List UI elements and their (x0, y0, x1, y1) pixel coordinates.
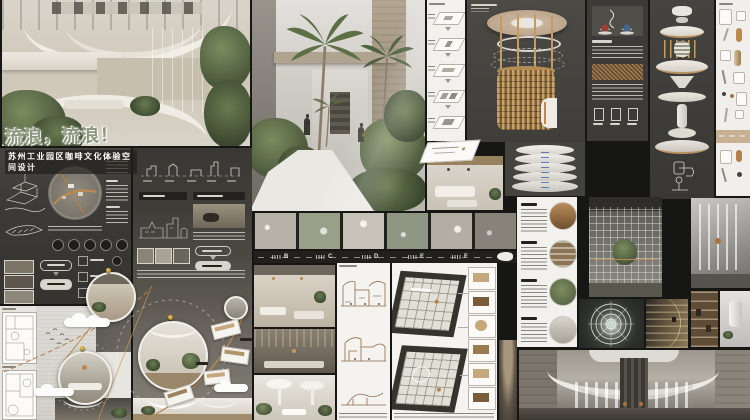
timeline-marker-d: D (374, 253, 378, 261)
note-photo-circle-4 (549, 316, 577, 344)
step-arrow-1 (445, 27, 451, 31)
lounge-lamp (292, 349, 296, 353)
header-chip-left (139, 192, 187, 200)
plant-column-right-lower (204, 80, 250, 146)
header-chip-label (143, 195, 165, 197)
machine-disc-3 (658, 92, 706, 102)
banner-mark-3 (739, 135, 745, 137)
step-arrow-2 (445, 53, 451, 57)
text-paragraph-a (592, 46, 643, 60)
inset-plant-3 (146, 359, 160, 371)
dining-lamp-2 (300, 277, 303, 280)
timeline-stripe-5 (452, 255, 461, 259)
bar-counter (435, 186, 475, 197)
callout-diagram-6 (473, 393, 489, 402)
render-atrium-courtyard (252, 0, 425, 211)
machine-base-plate (655, 140, 709, 154)
part-box (733, 72, 745, 84)
tower-board-header (471, 4, 497, 6)
machine-cap-2 (676, 17, 688, 23)
strip-thumb-6 (475, 213, 516, 249)
window-strip-blue (541, 148, 549, 188)
part-plate-3 (720, 150, 732, 164)
timeline-stripe-2 (316, 255, 325, 259)
shelf-arc (646, 299, 681, 348)
axon-plan-plate (419, 140, 480, 164)
pipe-highlights (699, 204, 743, 270)
plate-line-1 (432, 147, 459, 149)
machine-disc-1 (660, 26, 704, 38)
journey-circle-render-2 (138, 321, 208, 391)
machine-room-floor (691, 274, 750, 288)
note-text-3 (521, 285, 547, 309)
core-copper-dot-2 (639, 402, 643, 406)
massing-step-2 (433, 38, 465, 51)
note-header-1 (521, 203, 537, 206)
part-stick-2 (722, 70, 727, 84)
section-sketch-3 (339, 373, 388, 411)
section-sketch-1 (339, 270, 388, 316)
step-label-4 (428, 92, 435, 98)
vignette-roof-2 (224, 350, 244, 357)
callout-cell-2 (468, 291, 496, 314)
inset-wood-floor (140, 373, 206, 389)
core-copper-dot-1 (623, 402, 627, 406)
board-axon-plans (392, 263, 497, 420)
mesh-copper-rail (593, 259, 658, 260)
render-thumbnail-strip (254, 213, 517, 249)
cloud-2 (34, 388, 74, 396)
photo-subject (203, 213, 219, 222)
render-cylinder-lookup (579, 299, 644, 348)
render-kitchen-bar (427, 156, 503, 210)
sneaker-sketch (497, 252, 513, 261)
plan-1-plate (395, 277, 460, 331)
part-stick-3 (724, 108, 728, 122)
machine-cap (672, 6, 692, 16)
timeline-marker-b: B (284, 253, 288, 261)
shelf-jar-1 (696, 309, 701, 316)
step-label-2 (428, 40, 435, 46)
caption-lines (48, 226, 102, 233)
pendant-dot-1 (447, 168, 450, 171)
note-photo-circle-3 (549, 278, 577, 306)
cloud-bump (72, 313, 86, 323)
machine-core-tubes (620, 358, 648, 408)
inset-ceiling-band (88, 274, 134, 284)
hall-table (282, 409, 306, 415)
board-massing-process (427, 0, 465, 141)
part-dot-3 (737, 172, 742, 177)
strip-thumb-4 (387, 213, 428, 249)
part-stick-4 (721, 168, 727, 182)
poster-subtitle: 苏州工业园区咖啡文化体验空间设计 (5, 150, 137, 174)
banner-mark-1 (719, 135, 725, 137)
axon-plan-1 (392, 271, 467, 338)
spiral-cut (541, 98, 557, 128)
part-cylinder (734, 50, 741, 66)
board-tower-base (505, 142, 585, 196)
callout-diagram-3 (475, 320, 487, 331)
part-dot-2 (730, 94, 734, 98)
plan-2-plate (395, 352, 460, 407)
step-label-5 (428, 118, 435, 124)
step-arrow-4 (445, 105, 451, 109)
lounge-counter (264, 361, 324, 368)
plant-center-small (130, 96, 160, 116)
massing-mark-6 (442, 119, 455, 125)
massing-mark (443, 16, 453, 20)
note-header-3 (521, 279, 537, 282)
spiral-cut-detail (544, 102, 546, 124)
render-curved-bookshelf (646, 299, 688, 348)
timeline-stripe-3 (362, 255, 371, 259)
board-concept-text-column (587, 0, 648, 141)
coffee-bean-photo (592, 64, 643, 80)
massing-mark-4 (440, 93, 449, 99)
dining-ceiling-band (254, 265, 335, 275)
text-header-chip (592, 40, 612, 43)
plans-caption (394, 413, 494, 419)
journey-circle-render-4 (224, 296, 248, 320)
shelf-book-dot (672, 317, 676, 322)
cloud-bump-4 (220, 380, 231, 388)
part-capsule-copper-2 (736, 150, 742, 162)
machine-cone (670, 76, 694, 88)
machine-doodle-sketch (664, 158, 700, 194)
step-arrow-3 (445, 79, 451, 83)
inset-plant (92, 302, 106, 312)
massing-mark-3 (441, 68, 455, 72)
board-exploded-machine (650, 0, 714, 199)
vignette-roof (214, 323, 234, 332)
machine-stem (677, 104, 687, 128)
figure-label-2 (610, 123, 620, 125)
step-label-1 (428, 14, 435, 20)
dining-table-1 (260, 307, 286, 315)
timeline-stripe-1 (272, 255, 281, 259)
part-capsule-copper (736, 28, 742, 42)
history-timeline (139, 156, 245, 186)
plate-copper-dot (461, 147, 465, 150)
machine-ring-stack (674, 41, 690, 57)
board-exploded-tower (467, 0, 585, 142)
strip-thumb-2 (299, 213, 340, 249)
part-stick-1 (723, 28, 729, 41)
machine-flare (668, 128, 696, 138)
note-header-2 (521, 241, 537, 244)
note-photo-circle-2 (549, 240, 577, 268)
map-pin-2 (168, 315, 173, 320)
render-tree-column-hall (254, 375, 335, 420)
massing-mark-2 (445, 41, 453, 47)
board-section-sketches (337, 263, 390, 420)
part-ring-2 (735, 110, 744, 119)
callout-diagram-2 (473, 297, 489, 306)
factory-sketch-montage (137, 204, 189, 244)
journey-circle-render-3 (58, 351, 112, 405)
figure-label-1 (593, 123, 603, 125)
shelf-jar-2 (706, 325, 711, 332)
machine-disc-2 (656, 60, 708, 74)
part-dot-1 (722, 92, 726, 96)
tree-trunk-2 (311, 388, 314, 405)
header-chip-right (193, 192, 245, 200)
board-component-parts (716, 0, 750, 196)
callout-diagram-5 (473, 369, 489, 378)
hall-plant-2 (318, 405, 332, 416)
section-sketch-2 (339, 321, 388, 369)
inset-ceiling-arc (146, 321, 200, 338)
parts-banner (716, 130, 750, 143)
plate-line-2 (434, 152, 455, 154)
callout-diagram-1 (473, 273, 489, 282)
presentation-board-collage: 流浪，流浪！ 苏州工业园区咖啡文化体验空间设计 (0, 0, 750, 420)
counter-shelf (64, 100, 124, 109)
historic-photo (193, 204, 245, 228)
island-counter (447, 200, 477, 207)
parts-header (719, 3, 733, 5)
timeline-stripe-4 (408, 255, 417, 259)
sections-header (339, 265, 357, 267)
strip-thumb-3 (343, 213, 384, 249)
massing-mark-5 (449, 93, 458, 99)
dining-lamp-1 (272, 277, 275, 280)
lab-plant (723, 331, 733, 339)
cloud-bump-2 (88, 315, 98, 323)
inset-plant-2 (182, 353, 200, 369)
strip-thumb-1 (255, 213, 296, 249)
render-dining-hall (254, 265, 335, 327)
board-design-notes (517, 197, 577, 347)
pavilion-floor (519, 408, 750, 420)
concept-sketch-thumb (592, 6, 643, 36)
steam-sketch (592, 6, 643, 36)
roof-donut (487, 10, 567, 36)
tower-board-subheader (471, 8, 489, 12)
note-photo-circle-1 (549, 202, 577, 230)
figure-icon-3 (628, 108, 638, 121)
strip-thumb-5 (431, 213, 472, 249)
part-plate-2 (736, 92, 747, 106)
sunlight-streak (252, 0, 425, 211)
render-thumb-shelf (691, 291, 718, 347)
part-circle (720, 50, 731, 61)
dining-plant (314, 291, 326, 303)
massing-step-3 (433, 64, 465, 77)
timeline-marker-e: E (420, 253, 424, 261)
steel-cylinder (729, 301, 742, 327)
pendant-dot-2 (467, 168, 470, 171)
banner-mark-2 (729, 135, 735, 137)
cloud-3 (214, 384, 248, 392)
copper-fitting (715, 238, 721, 244)
note-text-2 (521, 247, 547, 271)
section-header-bar-2 (106, 180, 118, 182)
title-block: 流浪，流浪！ 苏州工业园区咖啡文化体验空间设计 (5, 122, 137, 175)
boat-sketch (4, 220, 46, 240)
massing-step-5 (433, 116, 465, 129)
render-sliver-arch (499, 340, 517, 420)
callout-cell-3 (468, 315, 496, 338)
map-pin-1 (106, 268, 111, 273)
cloud-1 (64, 318, 110, 327)
note-text-4 (521, 323, 547, 343)
render-canopy-pavilion (519, 350, 750, 420)
header-chip-label-2 (197, 195, 223, 197)
sections-caption (339, 413, 387, 418)
tree-trunk-1 (278, 387, 281, 405)
callout-cell-1 (468, 267, 496, 290)
timeline-marker-c: C (328, 253, 332, 261)
part-plate (719, 9, 732, 25)
render-thumb-steel-lab (720, 291, 750, 347)
exploded-axon-sketch (3, 170, 47, 216)
callout-cell-4 (468, 339, 496, 362)
inset-copper-lamp (82, 365, 87, 370)
vignette-roof-4 (167, 388, 187, 398)
figure-icon-2 (611, 108, 621, 121)
axon-plan-2 (392, 345, 468, 412)
callout-cell-5 (468, 363, 496, 386)
mesh-floor (589, 283, 662, 297)
vignette-roof-3 (207, 372, 225, 378)
map-pin-3 (80, 346, 85, 351)
figure-icon-1 (594, 108, 604, 121)
timeline-marker-f: F (464, 253, 468, 261)
vignette-label-1 (240, 338, 252, 341)
poster-title: 流浪，流浪！ (5, 120, 138, 149)
figure-label-3 (627, 123, 637, 125)
process-header (429, 3, 445, 5)
text-column-2 (106, 185, 128, 201)
bird-flock (46, 329, 69, 344)
text-column-3 (106, 211, 128, 225)
concept-text (193, 232, 245, 242)
text-paragraph-b (592, 84, 643, 102)
massing-step-1 (433, 12, 465, 25)
callout-diagram-4 (473, 345, 489, 354)
dining-table-2 (294, 311, 324, 319)
section-header-bar-3 (106, 206, 120, 208)
part-ring (736, 11, 746, 21)
massing-step-4 (433, 90, 465, 103)
cloud-bump-3 (41, 384, 53, 392)
render-wood-lounge (254, 329, 335, 373)
lookup-rings (579, 299, 644, 348)
kitchen-plant (489, 188, 501, 200)
mesh-centre-plant (613, 239, 637, 265)
vignette-label-2 (196, 362, 208, 365)
render-thumb-machine-room (691, 198, 750, 288)
experience-timeline-bar: B C D E F (254, 251, 517, 263)
callout-cell-6 (468, 387, 496, 410)
render-mesh-interior (589, 197, 662, 297)
note-text-1 (521, 209, 547, 233)
wood-slat-ceiling (254, 329, 335, 347)
step-label-3 (428, 66, 435, 72)
note-header-4 (521, 317, 537, 320)
